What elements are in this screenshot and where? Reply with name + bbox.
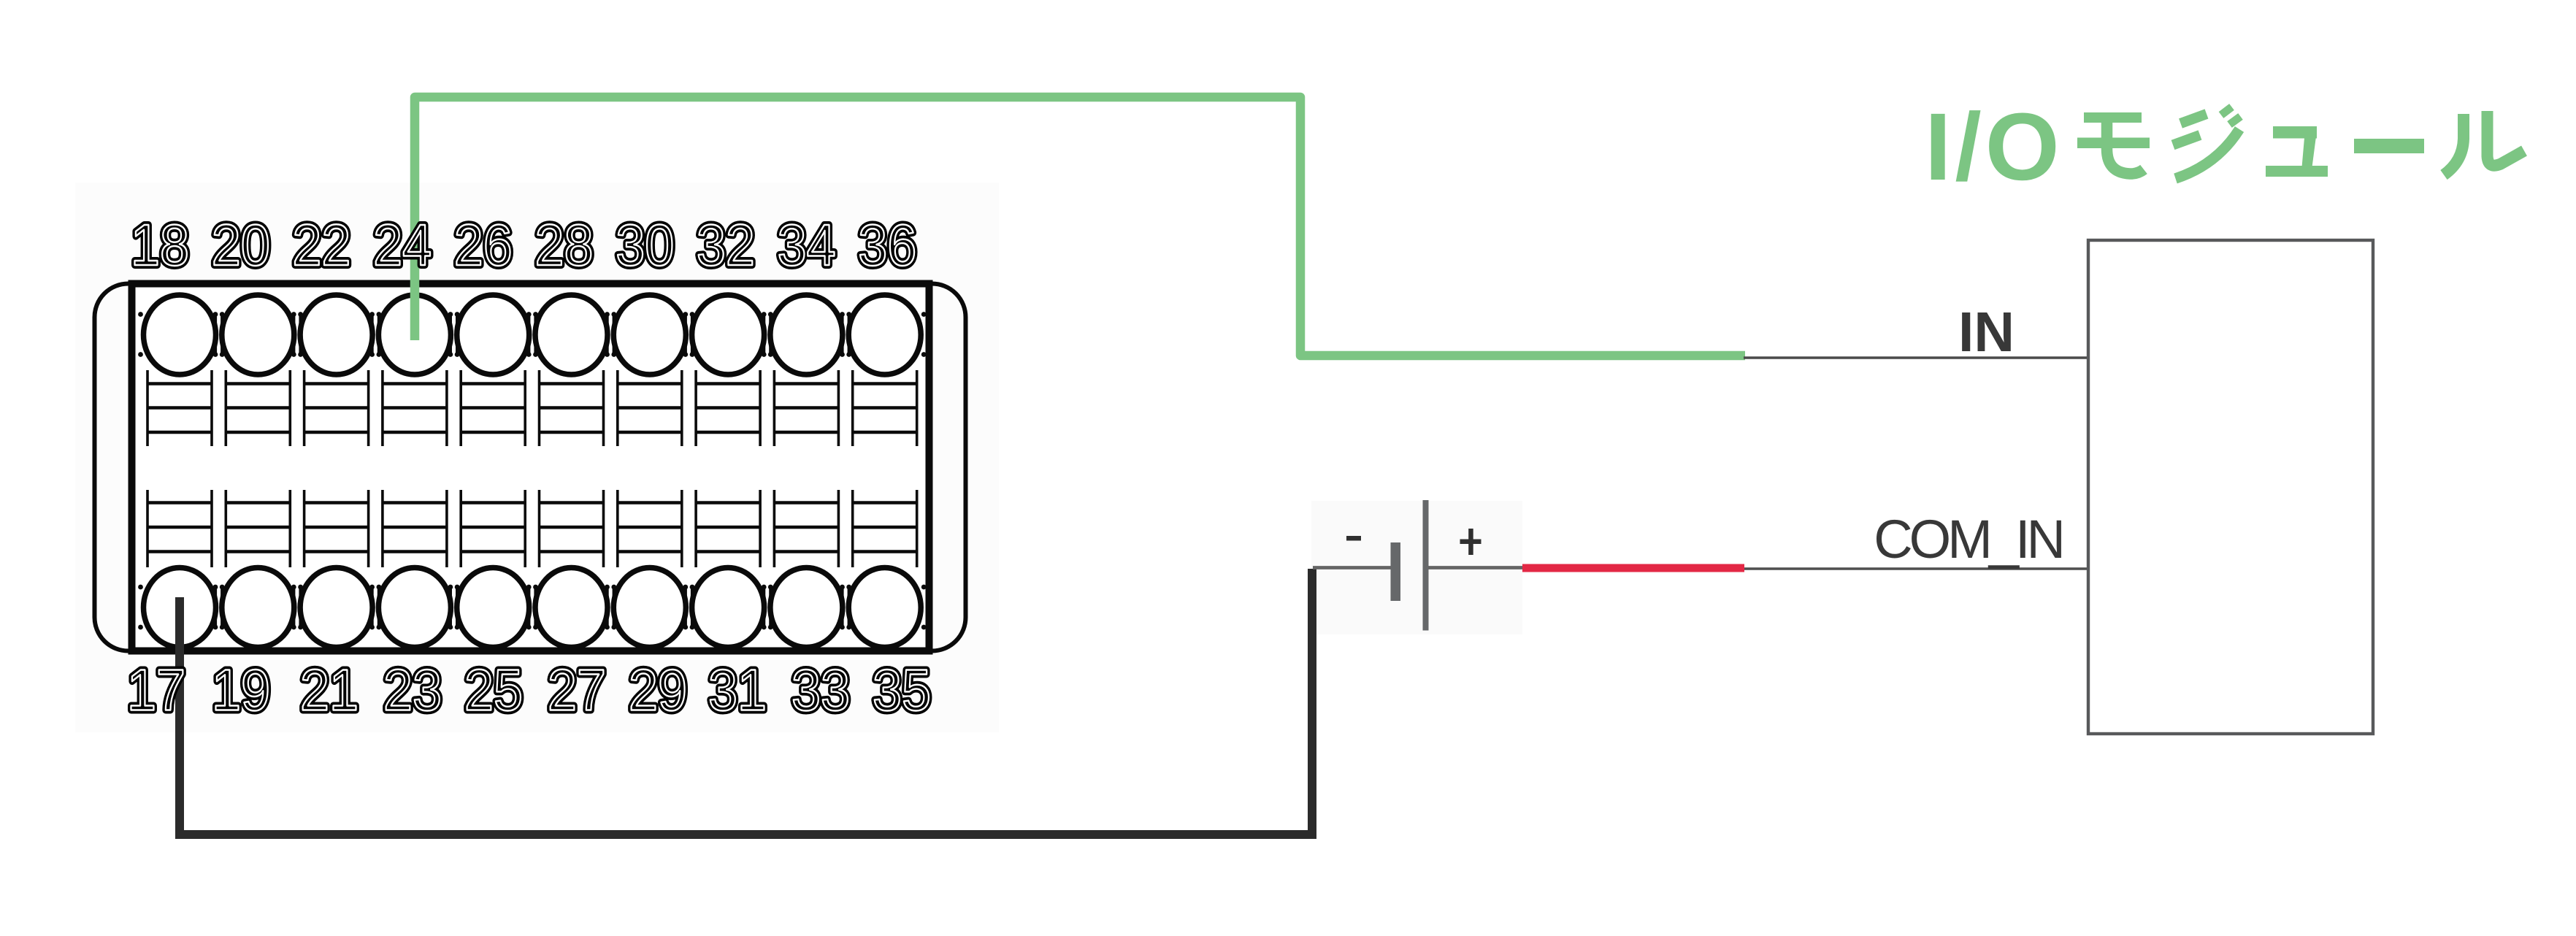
- svg-text:34: 34: [778, 212, 836, 277]
- svg-text:23: 23: [383, 658, 442, 723]
- svg-text:33: 33: [791, 658, 850, 723]
- svg-text:17: 17: [127, 658, 185, 723]
- svg-text:29: 29: [629, 658, 687, 723]
- svg-text:36: 36: [858, 212, 916, 277]
- svg-text:26: 26: [454, 212, 513, 277]
- svg-text:31: 31: [708, 658, 767, 723]
- svg-text:25: 25: [464, 658, 523, 723]
- svg-text:24: 24: [373, 212, 432, 277]
- svg-text:32: 32: [697, 212, 755, 277]
- svg-text:27: 27: [548, 658, 606, 723]
- svg-text:30: 30: [616, 212, 674, 277]
- svg-text:21: 21: [300, 658, 359, 723]
- svg-text:19: 19: [212, 658, 270, 723]
- svg-text:35: 35: [873, 658, 931, 723]
- svg-text:22: 22: [292, 212, 350, 277]
- svg-text:28: 28: [535, 212, 594, 277]
- svg-text:20: 20: [212, 212, 270, 277]
- svg-text:COM_IN: COM_IN: [1874, 509, 2062, 569]
- svg-text:IN: IN: [1958, 301, 2015, 364]
- svg-text:18: 18: [131, 212, 189, 277]
- svg-text:I/O: I/O: [1925, 93, 2063, 200]
